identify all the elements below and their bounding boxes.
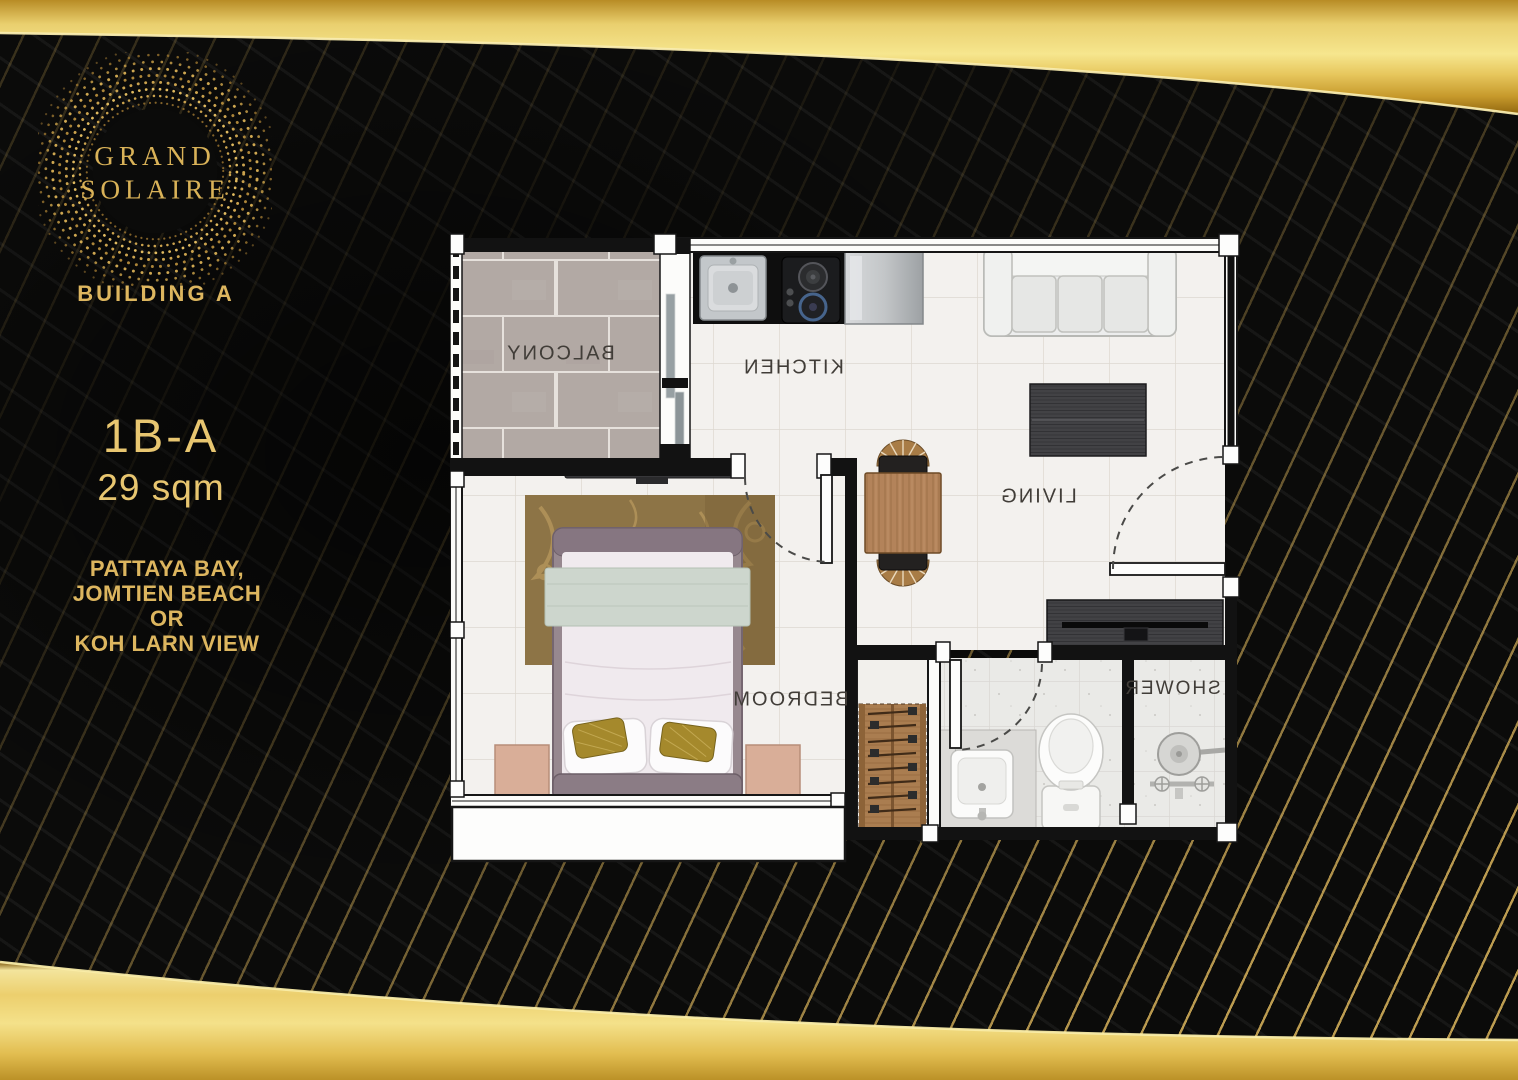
unit-info: 1B-A 29 sqm xyxy=(30,412,292,509)
fridge xyxy=(845,252,923,324)
tv-console xyxy=(1047,600,1223,652)
dining-table xyxy=(865,473,941,553)
ac-ledge xyxy=(452,807,845,861)
bathroom-sink xyxy=(951,750,1013,821)
coffee-table xyxy=(1030,384,1146,456)
wardrobe xyxy=(857,658,928,830)
bathroom-top-wall-left xyxy=(845,645,950,660)
bedroom-door-panel xyxy=(821,475,832,563)
poster-canvas: GRAND SOLAIRE BUILDING A 1B-A 29 sqm PAT… xyxy=(0,0,1518,1080)
bed-blanket xyxy=(545,568,750,626)
bed xyxy=(545,528,750,802)
kitchen-counter xyxy=(693,248,923,324)
bathroom-bottom-wall xyxy=(845,827,1237,840)
room-label-bedroom: BEDROOM xyxy=(731,688,848,710)
view-line: OR xyxy=(22,606,312,631)
brand-name-line1: GRAND xyxy=(94,141,215,171)
bedroom-top-wall xyxy=(450,458,745,476)
right-wall-lower xyxy=(1225,595,1237,840)
unit-type-label: 1B-A xyxy=(30,412,292,459)
view-line: PATTAYA BAY, xyxy=(22,556,312,581)
nightstand-left xyxy=(495,745,549,802)
room-label-balcony: BALCONY xyxy=(505,342,615,364)
sofa xyxy=(984,248,1176,336)
room-label-shower: SHOWER xyxy=(1123,678,1221,699)
floor-plan: BALCONY KITCHEN LIVING BEDROOM SHOWER xyxy=(450,232,1240,867)
toilet xyxy=(1039,714,1103,830)
balcony-sliding-door xyxy=(660,238,690,462)
bathroom-top-wall-right xyxy=(1040,645,1237,660)
brand-logo: GRAND SOLAIRE xyxy=(38,52,272,290)
view-description: PATTAYA BAY, JOMTIEN BEACH OR KOH LARN V… xyxy=(22,556,312,656)
bathroom-door-panel xyxy=(950,660,961,748)
entrance-door-panel xyxy=(1110,563,1225,575)
bed-footboard xyxy=(553,528,742,556)
balcony-top-wall xyxy=(464,238,662,252)
building-label: BUILDING A xyxy=(40,281,272,307)
room-label-kitchen: KITCHEN xyxy=(742,356,844,378)
brand-name-line2: SOLAIRE xyxy=(80,174,229,204)
view-line: JOMTIEN BEACH xyxy=(22,581,312,606)
bathroom-left-wall xyxy=(928,658,940,834)
unit-area-label: 29 sqm xyxy=(30,467,292,509)
kitchen-sink xyxy=(700,256,766,320)
nightstand-right xyxy=(746,745,800,802)
view-line: KOH LARN VIEW xyxy=(22,631,312,656)
stove xyxy=(782,257,840,323)
room-label-living: LIVING xyxy=(999,485,1077,507)
